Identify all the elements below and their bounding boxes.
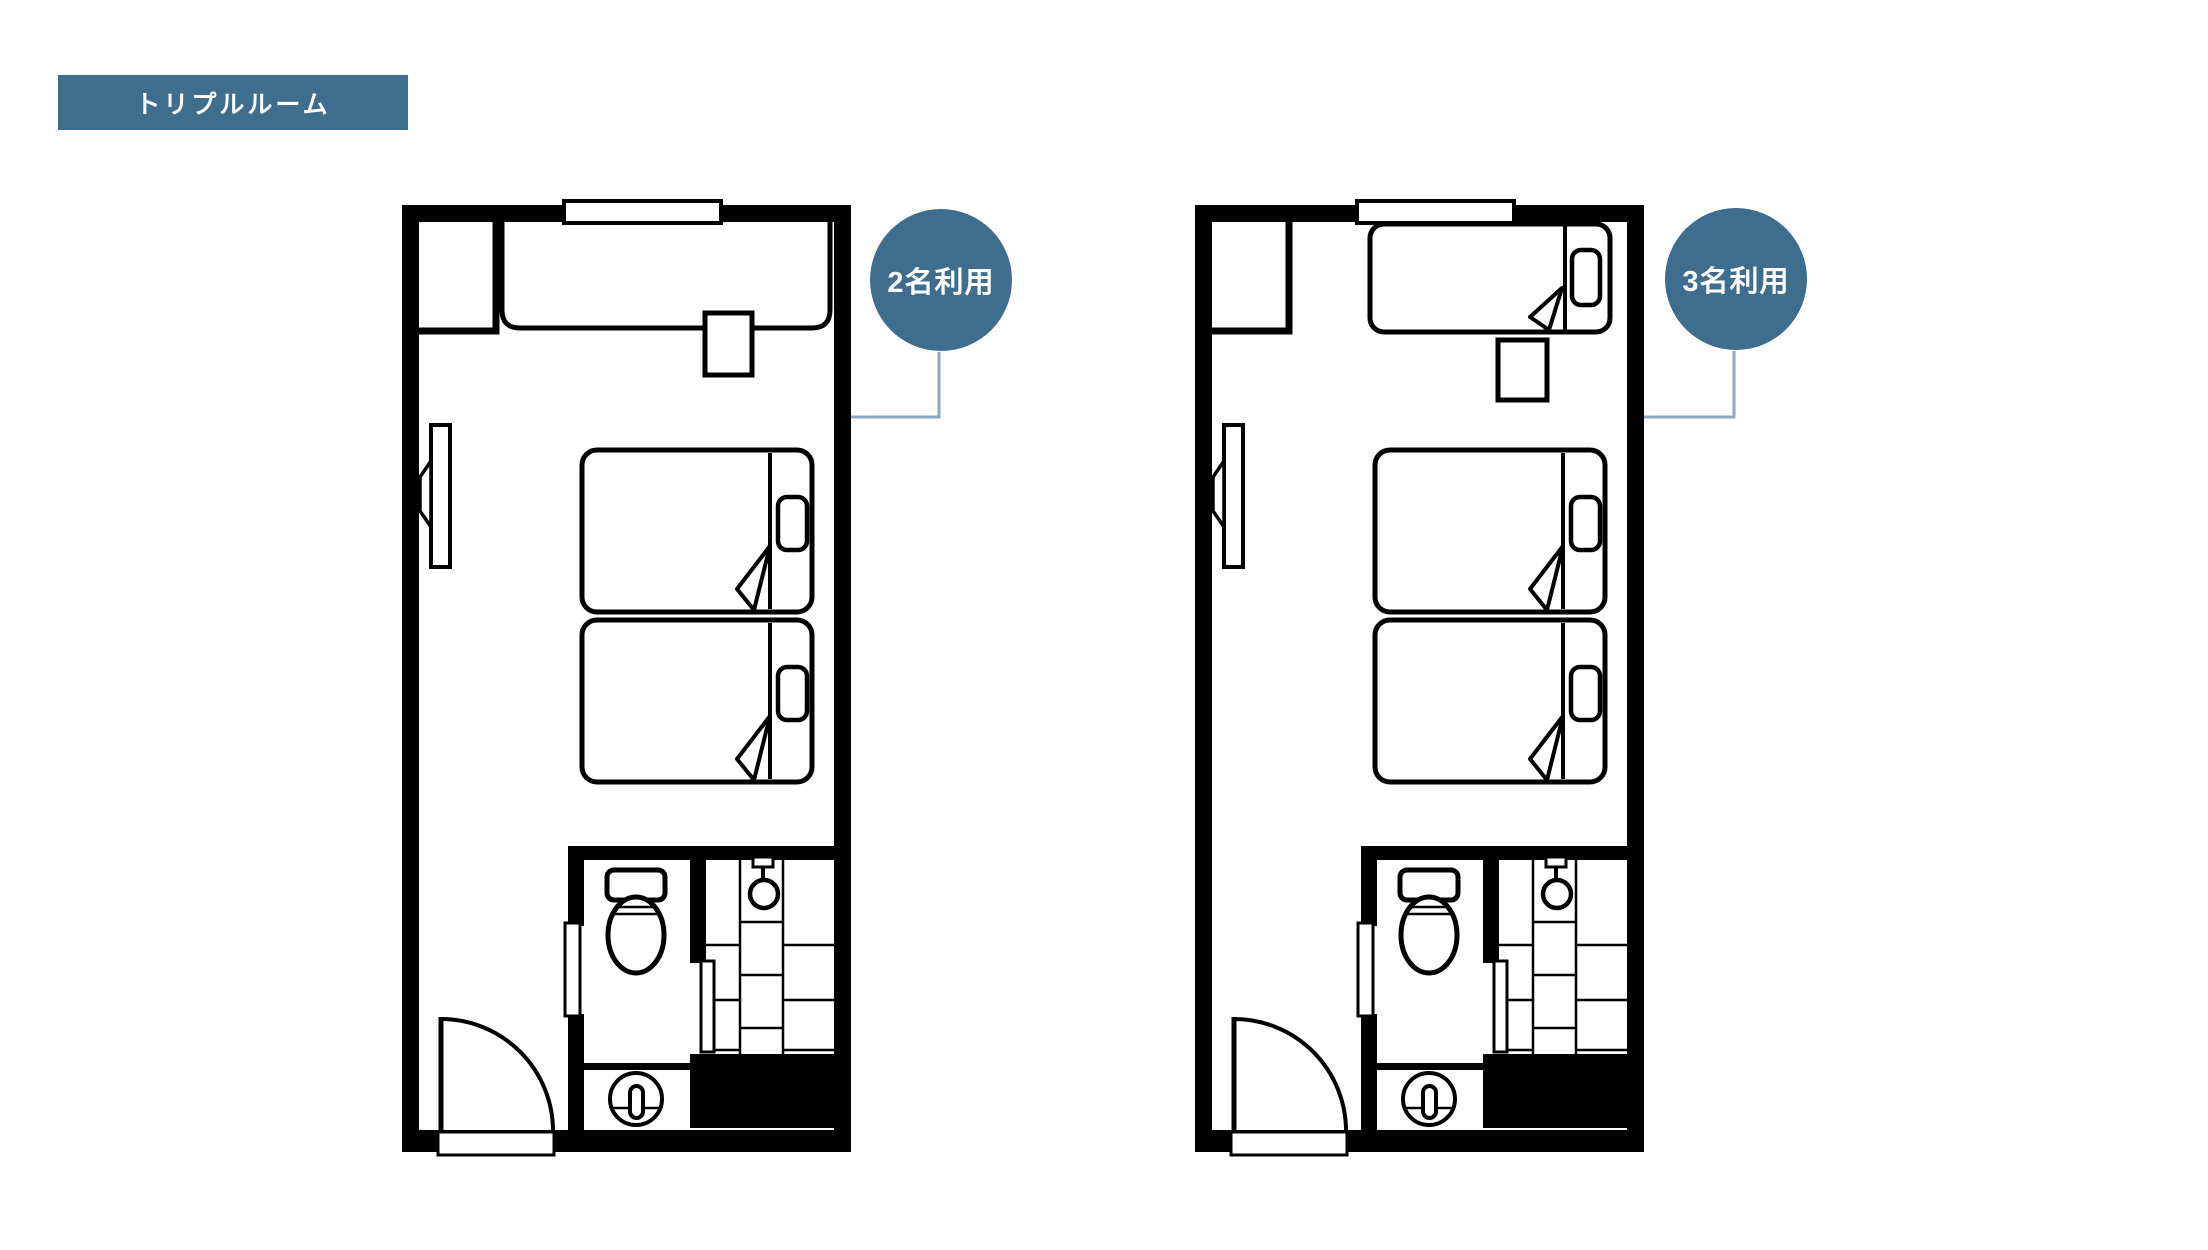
nightstand-icon [1498,340,1547,400]
room-type-title: トリプルルーム [135,85,330,121]
occupancy-badge-3-guests: 3名利用 [1665,208,1807,350]
pillow-icon [1572,250,1600,305]
nightstand-icon [705,313,752,375]
bed-3-horizontal [1370,224,1610,332]
room-type-title-badge: トリプルルーム [58,75,408,130]
callout-connector-left [851,352,939,417]
callout-connector-right [1644,351,1734,417]
occupancy-label: 2名利用 [887,259,994,301]
occupancy-label: 3名利用 [1682,258,1789,300]
occupancy-badge-2-guests: 2名利用 [870,209,1012,351]
floor-plan-3-guests [1195,201,1644,1155]
page: トリプルルーム 2名利用 3名利用 [0,0,2208,1250]
floor-plan-2-guests [402,201,851,1155]
sofa-counter-icon [502,219,830,328]
floor-plans-figure [0,0,2208,1250]
